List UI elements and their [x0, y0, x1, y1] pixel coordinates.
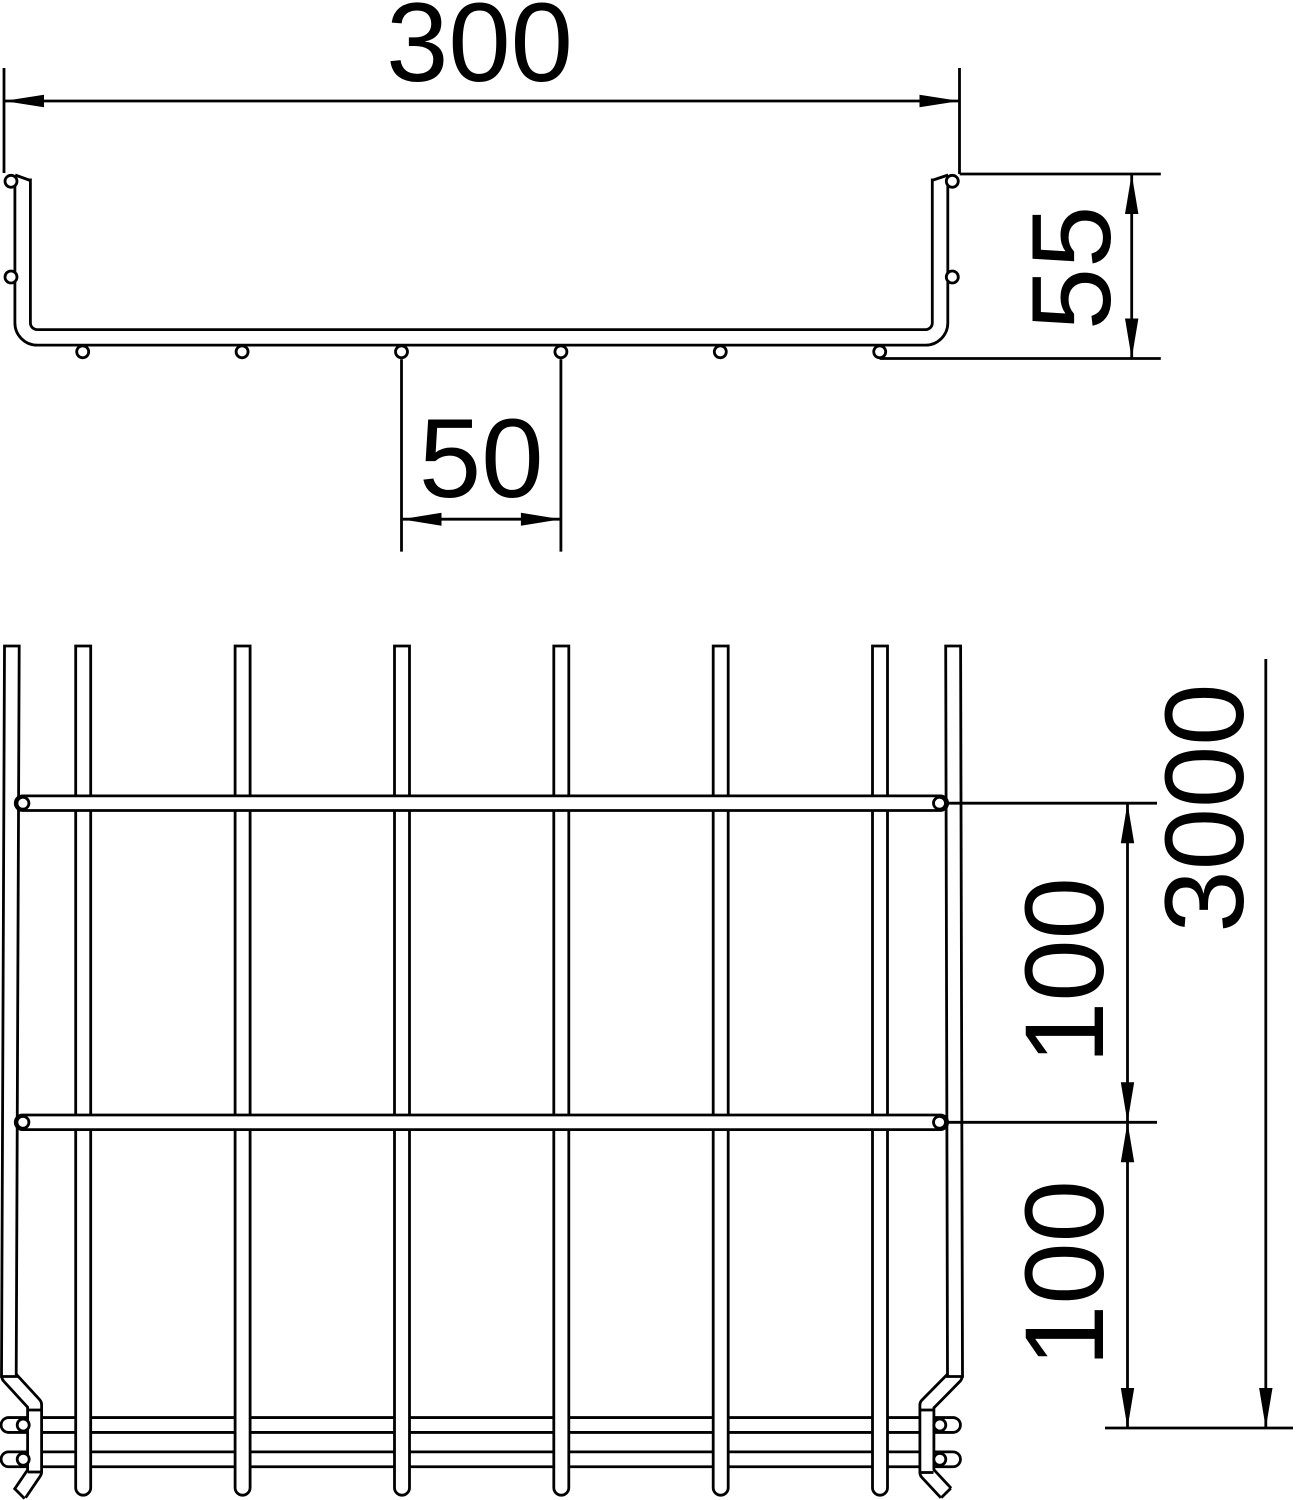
svg-text:3000: 3000: [1142, 683, 1267, 932]
svg-text:100: 100: [1002, 877, 1127, 1064]
svg-text:100: 100: [1002, 1180, 1127, 1367]
svg-text:50: 50: [419, 396, 544, 521]
svg-text:300: 300: [386, 0, 573, 105]
svg-text:55: 55: [1009, 206, 1134, 331]
